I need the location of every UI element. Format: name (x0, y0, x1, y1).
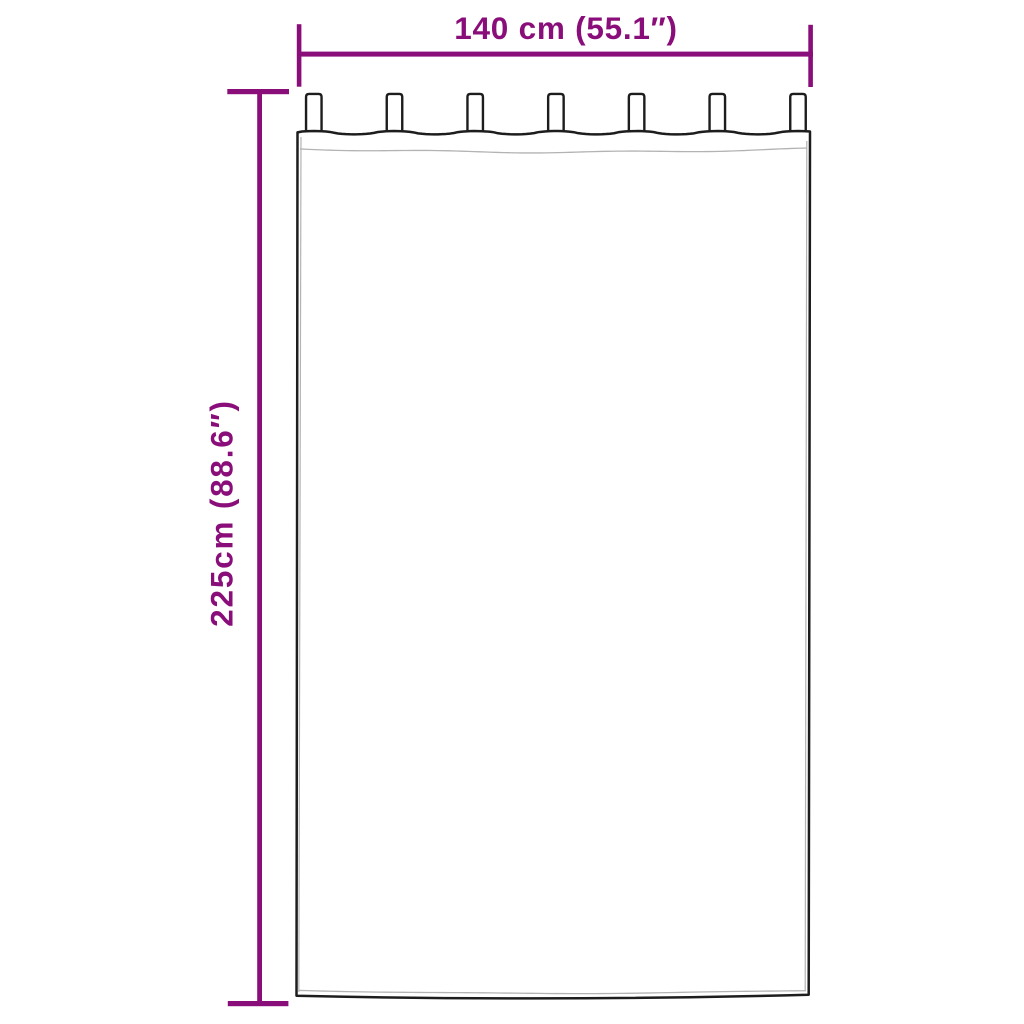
svg-text:225cm (88.6″): 225cm (88.6″) (203, 399, 239, 627)
svg-text:140 cm (55.1″): 140 cm (55.1″) (454, 10, 677, 46)
